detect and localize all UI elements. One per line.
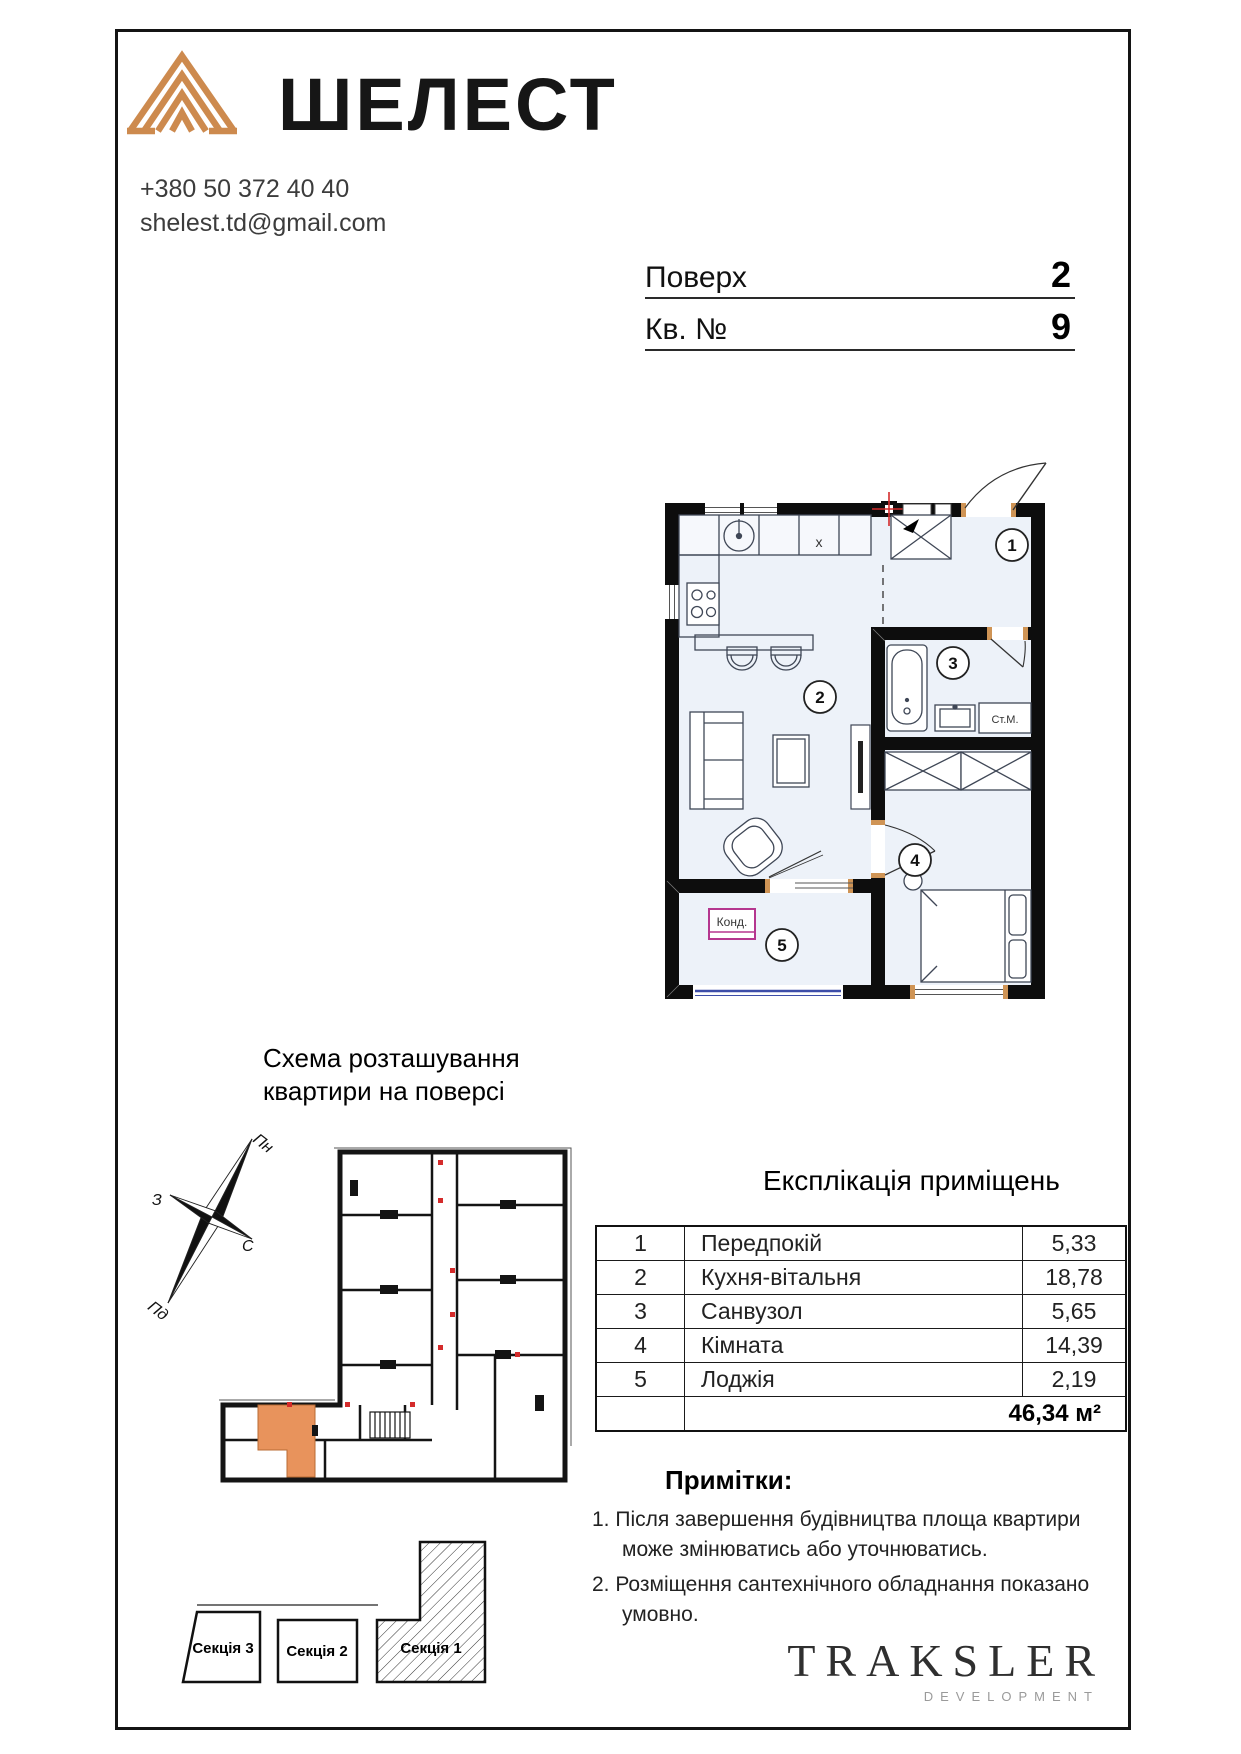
room-area: 5,33 — [1023, 1226, 1127, 1261]
room-num: 3 — [596, 1295, 685, 1329]
room-name: Передпокій — [685, 1226, 1023, 1261]
washing-machine: Ст.М. — [979, 703, 1031, 733]
brand-name: ШЕЛЕСТ — [278, 62, 618, 147]
ac-unit: Конд. — [709, 909, 755, 939]
apartment-field: Кв. № 9 — [645, 315, 1075, 351]
room-area: 14,39 — [1023, 1329, 1127, 1363]
mini-plan-stairs — [370, 1412, 410, 1438]
washing-machine-label: Ст.М. — [991, 714, 1018, 726]
kitchen-cabinets — [679, 515, 871, 555]
room-name: Санвузол — [685, 1295, 1023, 1329]
total-area: 46,34 м² — [685, 1397, 1127, 1432]
apartment-value: 9 — [1051, 306, 1071, 348]
room-num: 4 — [596, 1329, 685, 1363]
ac-label: Конд. — [717, 915, 748, 929]
apartment-floor-plan: x — [665, 415, 1060, 1010]
sofa — [690, 712, 743, 809]
developer-name: TRAKSLER — [700, 1634, 1105, 1687]
room-num: 1 — [596, 1226, 685, 1261]
entry-wall-cabinets — [903, 504, 951, 515]
room-area: 5,65 — [1023, 1295, 1127, 1329]
section-1-shape — [377, 1542, 485, 1682]
brand-email: shelest.td@gmail.com — [140, 209, 386, 238]
table-row: 4 Кімната 14,39 — [596, 1329, 1126, 1363]
developer-tagline: DEVELOPMENT — [700, 1689, 1105, 1704]
room-area: 18,78 — [1023, 1261, 1127, 1295]
room-4-label: 4 — [910, 851, 920, 870]
compass-west-label: З — [152, 1192, 162, 1209]
room-3-label: 3 — [948, 654, 957, 673]
floor-value: 2 — [1051, 254, 1071, 296]
compass-south-label: Пд — [144, 1298, 171, 1320]
note-item-1: 1. Після завершення будівництва площа кв… — [570, 1505, 1097, 1566]
explication-table: 1 Передпокій 5,33 2 Кухня-вітальня 18,78… — [595, 1225, 1127, 1432]
table-row: 2 Кухня-вітальня 18,78 — [596, 1261, 1126, 1295]
table-row: 1 Передпокій 5,33 — [596, 1226, 1126, 1261]
floor-label: Поверх — [645, 261, 747, 295]
table-row: 3 Санвузол 5,65 — [596, 1295, 1126, 1329]
explication-title: Експлікація приміщень — [763, 1165, 1060, 1197]
bedroom-wardrobe — [885, 752, 1031, 790]
room-name: Лоджія — [685, 1363, 1023, 1397]
room-area: 2,19 — [1023, 1363, 1127, 1397]
brand-phone: +380 50 372 40 40 — [140, 175, 349, 204]
room-5-label: 5 — [777, 936, 786, 955]
tv-panel — [851, 725, 870, 809]
coffee-table — [773, 735, 809, 787]
kitchen-x-label: x — [816, 534, 823, 550]
building-sections-diagram: Секція 3 Секція 2 Секція 1 — [165, 1535, 495, 1690]
entry-closet — [891, 515, 951, 559]
bathtub — [887, 645, 927, 731]
scheme-title: Схема розташування квартири на поверсі — [263, 1042, 523, 1107]
room-name: Кімната — [685, 1329, 1023, 1363]
room-num: 2 — [596, 1261, 685, 1295]
section-2-label: Секція 2 — [286, 1643, 347, 1660]
floor-field: Поверх 2 — [645, 263, 1075, 299]
room-name: Кухня-вітальня — [685, 1261, 1023, 1295]
room-num: 5 — [596, 1363, 685, 1397]
section-1-label: Секція 1 — [400, 1640, 461, 1657]
loggia-glazing — [693, 985, 843, 999]
floor-overview-plan — [195, 1140, 575, 1495]
highlighted-apartment-door — [312, 1425, 318, 1436]
developer-logo: TRAKSLER DEVELOPMENT — [700, 1634, 1105, 1704]
floorplan-page: ШЕЛЕСТ +380 50 372 40 40 shelest.td@gmai… — [0, 0, 1241, 1754]
notes-list: 1. Після завершення будівництва площа кв… — [570, 1505, 1097, 1635]
table-row: 5 Лоджія 2,19 — [596, 1363, 1126, 1397]
section-3-label: Секція 3 — [192, 1640, 253, 1657]
brand-tree-icon — [125, 40, 240, 135]
table-total-row: 46,34 м² — [596, 1397, 1126, 1432]
total-empty-cell — [596, 1397, 685, 1432]
notes-title: Примітки: — [665, 1465, 792, 1496]
bathroom-sink — [935, 705, 975, 731]
note-item-2: 2. Розміщення сантехнічного обладнання п… — [570, 1570, 1097, 1631]
bedroom-window — [910, 985, 1008, 999]
apartment-label: Кв. № — [645, 313, 727, 347]
room-2-label: 2 — [815, 688, 824, 707]
room-1-label: 1 — [1007, 536, 1016, 555]
